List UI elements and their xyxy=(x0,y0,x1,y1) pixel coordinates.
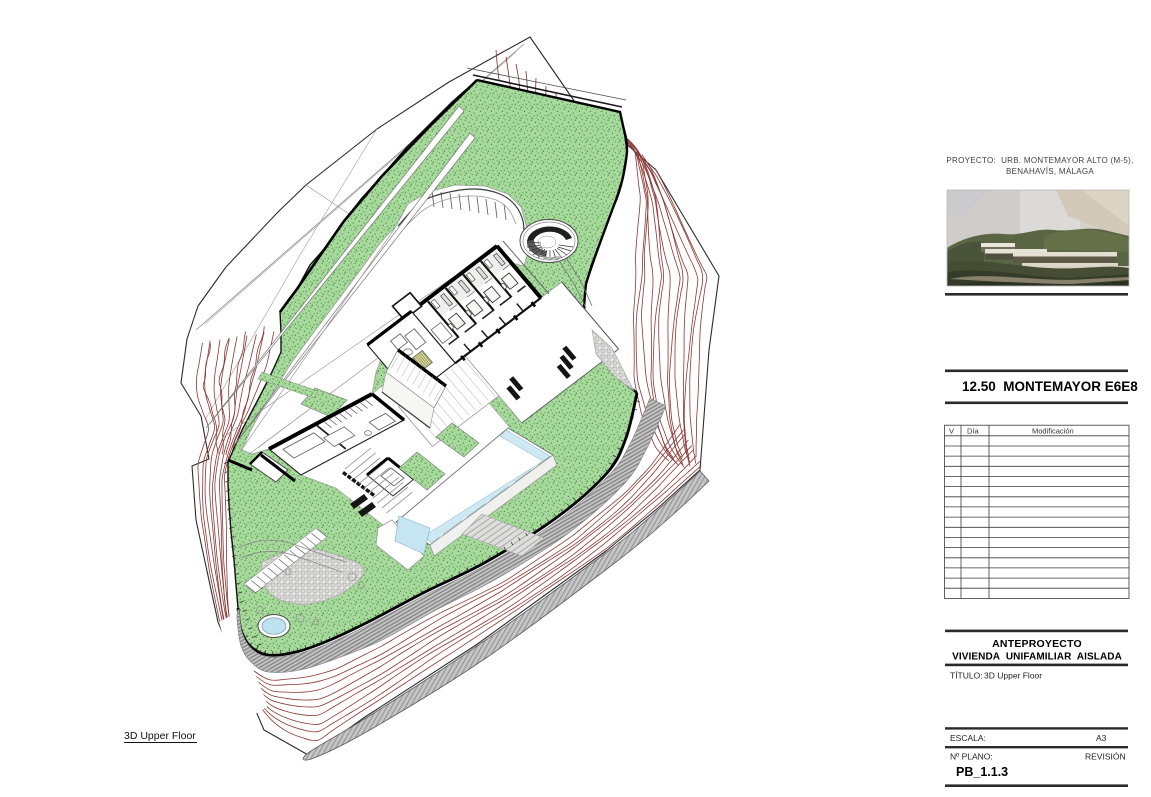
svg-text:Modificación: Modificación xyxy=(1032,427,1074,436)
svg-text:PROYECTO: URB. MONTEMAYOR ALT: PROYECTO: URB. MONTEMAYOR ALTO (M-5), xyxy=(946,156,1133,165)
svg-text:BENAHAVÍS, MÁLAGA: BENAHAVÍS, MÁLAGA xyxy=(1006,167,1094,176)
svg-text:ANTEPROYECTO: ANTEPROYECTO xyxy=(992,638,1082,650)
svg-text:Día: Día xyxy=(967,427,980,436)
svg-text:3D Upper Floor: 3D Upper Floor xyxy=(124,730,196,742)
svg-text:REVISIÓN: REVISIÓN xyxy=(1085,752,1126,762)
svg-text:A3: A3 xyxy=(1096,733,1107,743)
svg-text:V: V xyxy=(949,427,954,436)
svg-text:TÍTULO:: TÍTULO: xyxy=(950,671,983,681)
svg-text:ESCALA:: ESCALA: xyxy=(950,733,986,743)
svg-text:PB_1.1.3: PB_1.1.3 xyxy=(956,765,1008,779)
svg-text:12.50 MONTEMAYOR E6E8: 12.50 MONTEMAYOR E6E8 xyxy=(962,379,1138,394)
svg-text:3D Upper Floor: 3D Upper Floor xyxy=(984,671,1042,681)
svg-text:VIVIENDA UNIFAMILIAR AISLADA: VIVIENDA UNIFAMILIAR AISLADA xyxy=(952,652,1122,663)
svg-text:Nº PLANO:: Nº PLANO: xyxy=(950,752,993,762)
